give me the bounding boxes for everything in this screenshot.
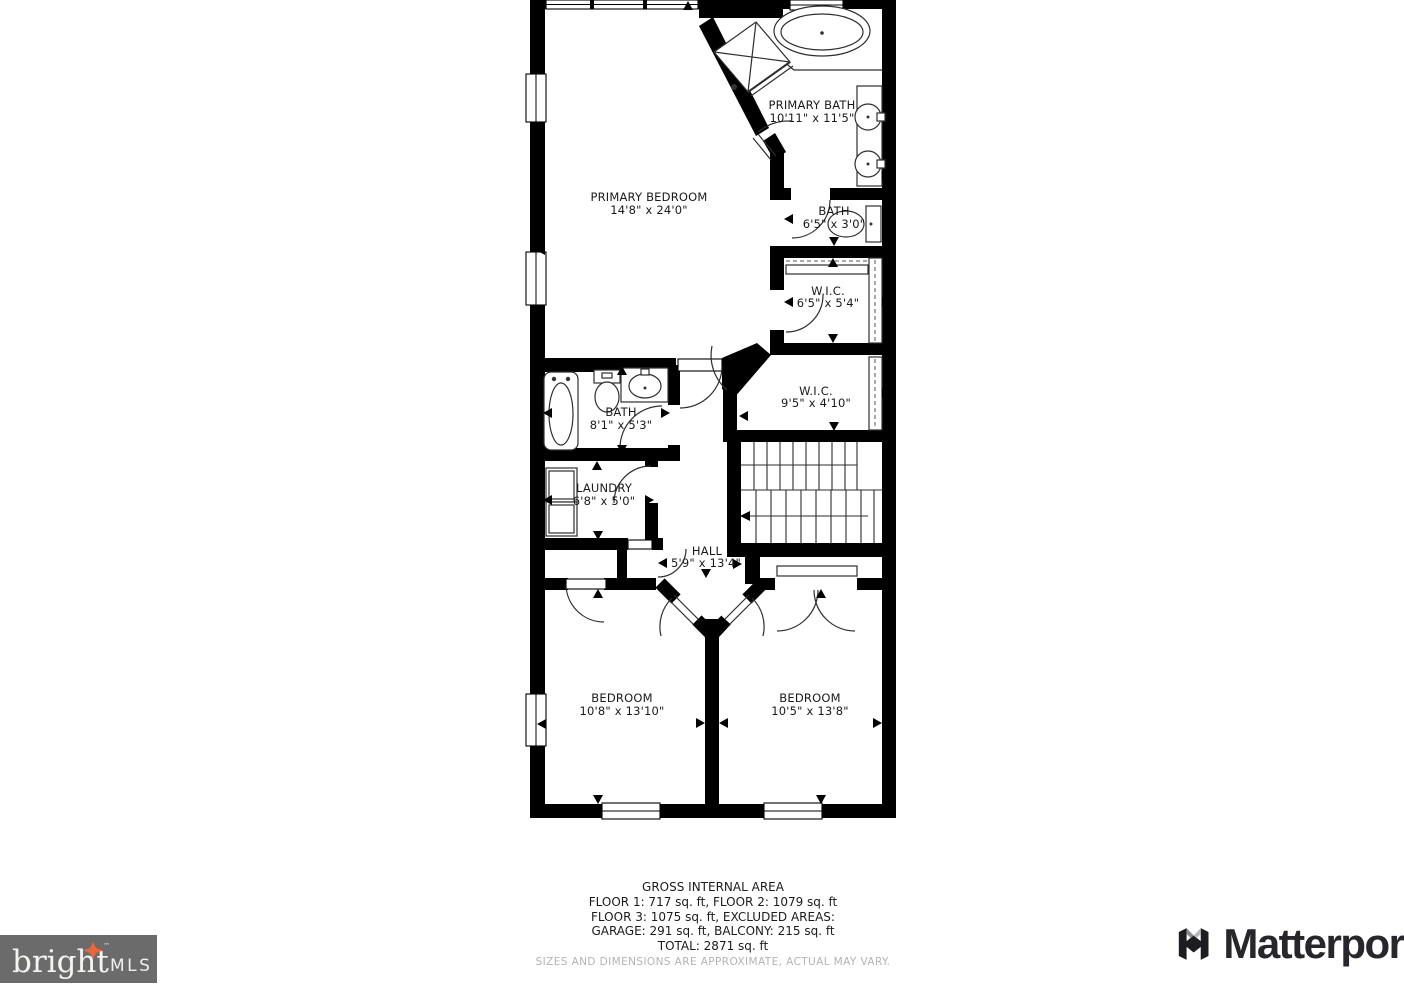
- matterport-icon: [1176, 920, 1211, 968]
- room-dims: 8'1" x 5'3": [590, 418, 653, 432]
- staircase: [740, 442, 882, 543]
- room-dims: 6'8" x 5'0": [573, 494, 636, 508]
- room-dims: 6'5" x 3'0": [803, 217, 866, 231]
- shower-head-icon: [731, 84, 737, 90]
- area-garage-balcony: GARAGE: 291 sq. ft, BALCONY: 215 sq. ft: [433, 924, 993, 939]
- double-vanity-sinks: [855, 86, 885, 186]
- matterport-logo: Matterport: [1176, 920, 1404, 968]
- room-label: BATH: [818, 204, 849, 218]
- disclaimer-text: SIZES AND DIMENSIONS ARE APPROXIMATE, AC…: [433, 955, 993, 970]
- closet-strip: [777, 566, 857, 576]
- room-dims: 10'11" x 11'5": [769, 111, 854, 125]
- room-label: BEDROOM: [591, 691, 652, 705]
- area-total: TOTAL: 2871 sq. ft: [433, 939, 993, 954]
- room-label: PRIMARY BATH: [769, 98, 856, 112]
- room-dims: 14'8" x 24'0": [610, 203, 688, 217]
- area-summary: GROSS INTERNAL AREA FLOOR 1: 717 sq. ft,…: [433, 880, 993, 970]
- trademark-symbol: ™: [103, 942, 110, 950]
- room-dims: 9'5" x 4'10": [781, 396, 851, 410]
- page: { "plan": { "rooms": [ {"name": "PRIMARY…: [0, 0, 1404, 983]
- room-dims: 10'5" x 13'8": [771, 704, 849, 718]
- hall-diagonal-walls: [660, 583, 763, 634]
- room-label: BATH: [605, 405, 636, 419]
- room-label: BEDROOM: [779, 691, 840, 705]
- area-floor-3-excluded: FLOOR 3: 1075 sq. ft, EXCLUDED AREAS:: [433, 910, 993, 925]
- area-floor-1-2: FLOOR 1: 717 sq. ft, FLOOR 2: 1079 sq. f…: [433, 895, 993, 910]
- sink-vanity: [621, 368, 668, 402]
- room-dims: 10'8" x 13'10": [579, 704, 664, 718]
- stairs-direction-arrow-icon: [740, 511, 750, 521]
- room-dims: 5'9" x 13'4": [671, 556, 741, 570]
- floor-plan: PRIMARY BEDROOM 14'8" x 24'0" PRIMARY BA…: [0, 0, 1404, 983]
- matterport-logo-text: Matterport: [1223, 920, 1404, 968]
- room-dims: 6'5" x 5'4": [797, 296, 860, 310]
- room-label: PRIMARY BEDROOM: [590, 190, 707, 204]
- room-label: LAUNDRY: [576, 481, 633, 495]
- bright-mls-logo: bright ™ MLS: [0, 935, 157, 987]
- area-summary-title: GROSS INTERNAL AREA: [433, 880, 993, 895]
- mls-logo-text: MLS: [110, 956, 152, 976]
